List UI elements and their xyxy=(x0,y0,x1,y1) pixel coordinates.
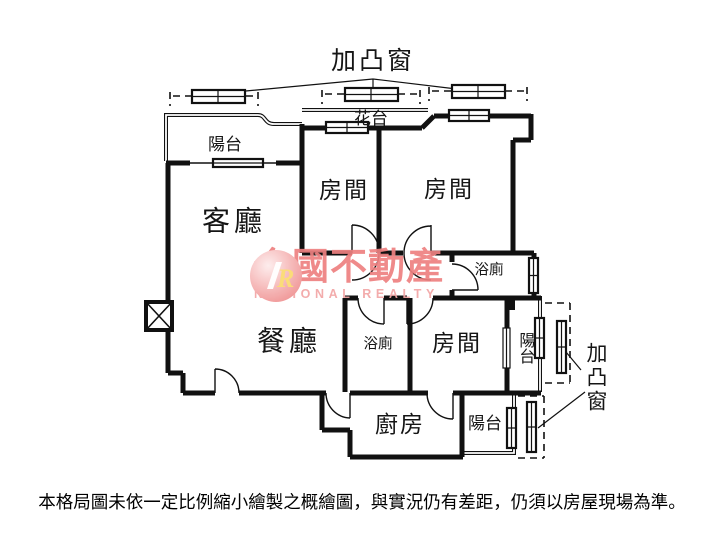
label-bay-window-right: 加凸窗 xyxy=(585,342,607,414)
label-balcony-bottom: 陽台 xyxy=(468,415,502,433)
shaft-box xyxy=(146,302,172,330)
label-balcony-right: 陽台 xyxy=(516,332,533,364)
label-bathroom-upper: 浴廁 xyxy=(475,263,504,278)
label-bedroom-3: 房間 xyxy=(432,332,482,356)
label-bathroom-lower: 浴廁 xyxy=(364,337,393,352)
label-flower-stand: 花台 xyxy=(354,110,388,128)
watermark: R 全國不動產 NATIONAL REALTY xyxy=(249,249,444,301)
realty-logo-icon: R xyxy=(249,249,303,303)
label-living-room: 客廳 xyxy=(202,207,266,236)
floorplan-page: 加凸窗 花台 陽台 客廳 房間 房間 浴廁 餐廳 浴廁 房間 陽台 加凸窗 廚房… xyxy=(0,0,724,551)
label-bedroom-1: 房間 xyxy=(319,179,369,203)
wall-junction-cap xyxy=(505,296,515,310)
label-dining-room: 餐廳 xyxy=(257,327,321,356)
label-bedroom-2: 房間 xyxy=(424,178,474,202)
label-balcony-top-left: 陽台 xyxy=(208,136,242,154)
label-bay-window-top: 加凸窗 xyxy=(331,49,415,75)
svg-text:R: R xyxy=(276,264,294,293)
disclaimer-text: 本格局圖未依一定比例縮小繪製之概繪圖，與實況仍有差距，仍須以房屋現場為準。 xyxy=(0,489,724,514)
label-kitchen: 廚房 xyxy=(375,413,425,437)
